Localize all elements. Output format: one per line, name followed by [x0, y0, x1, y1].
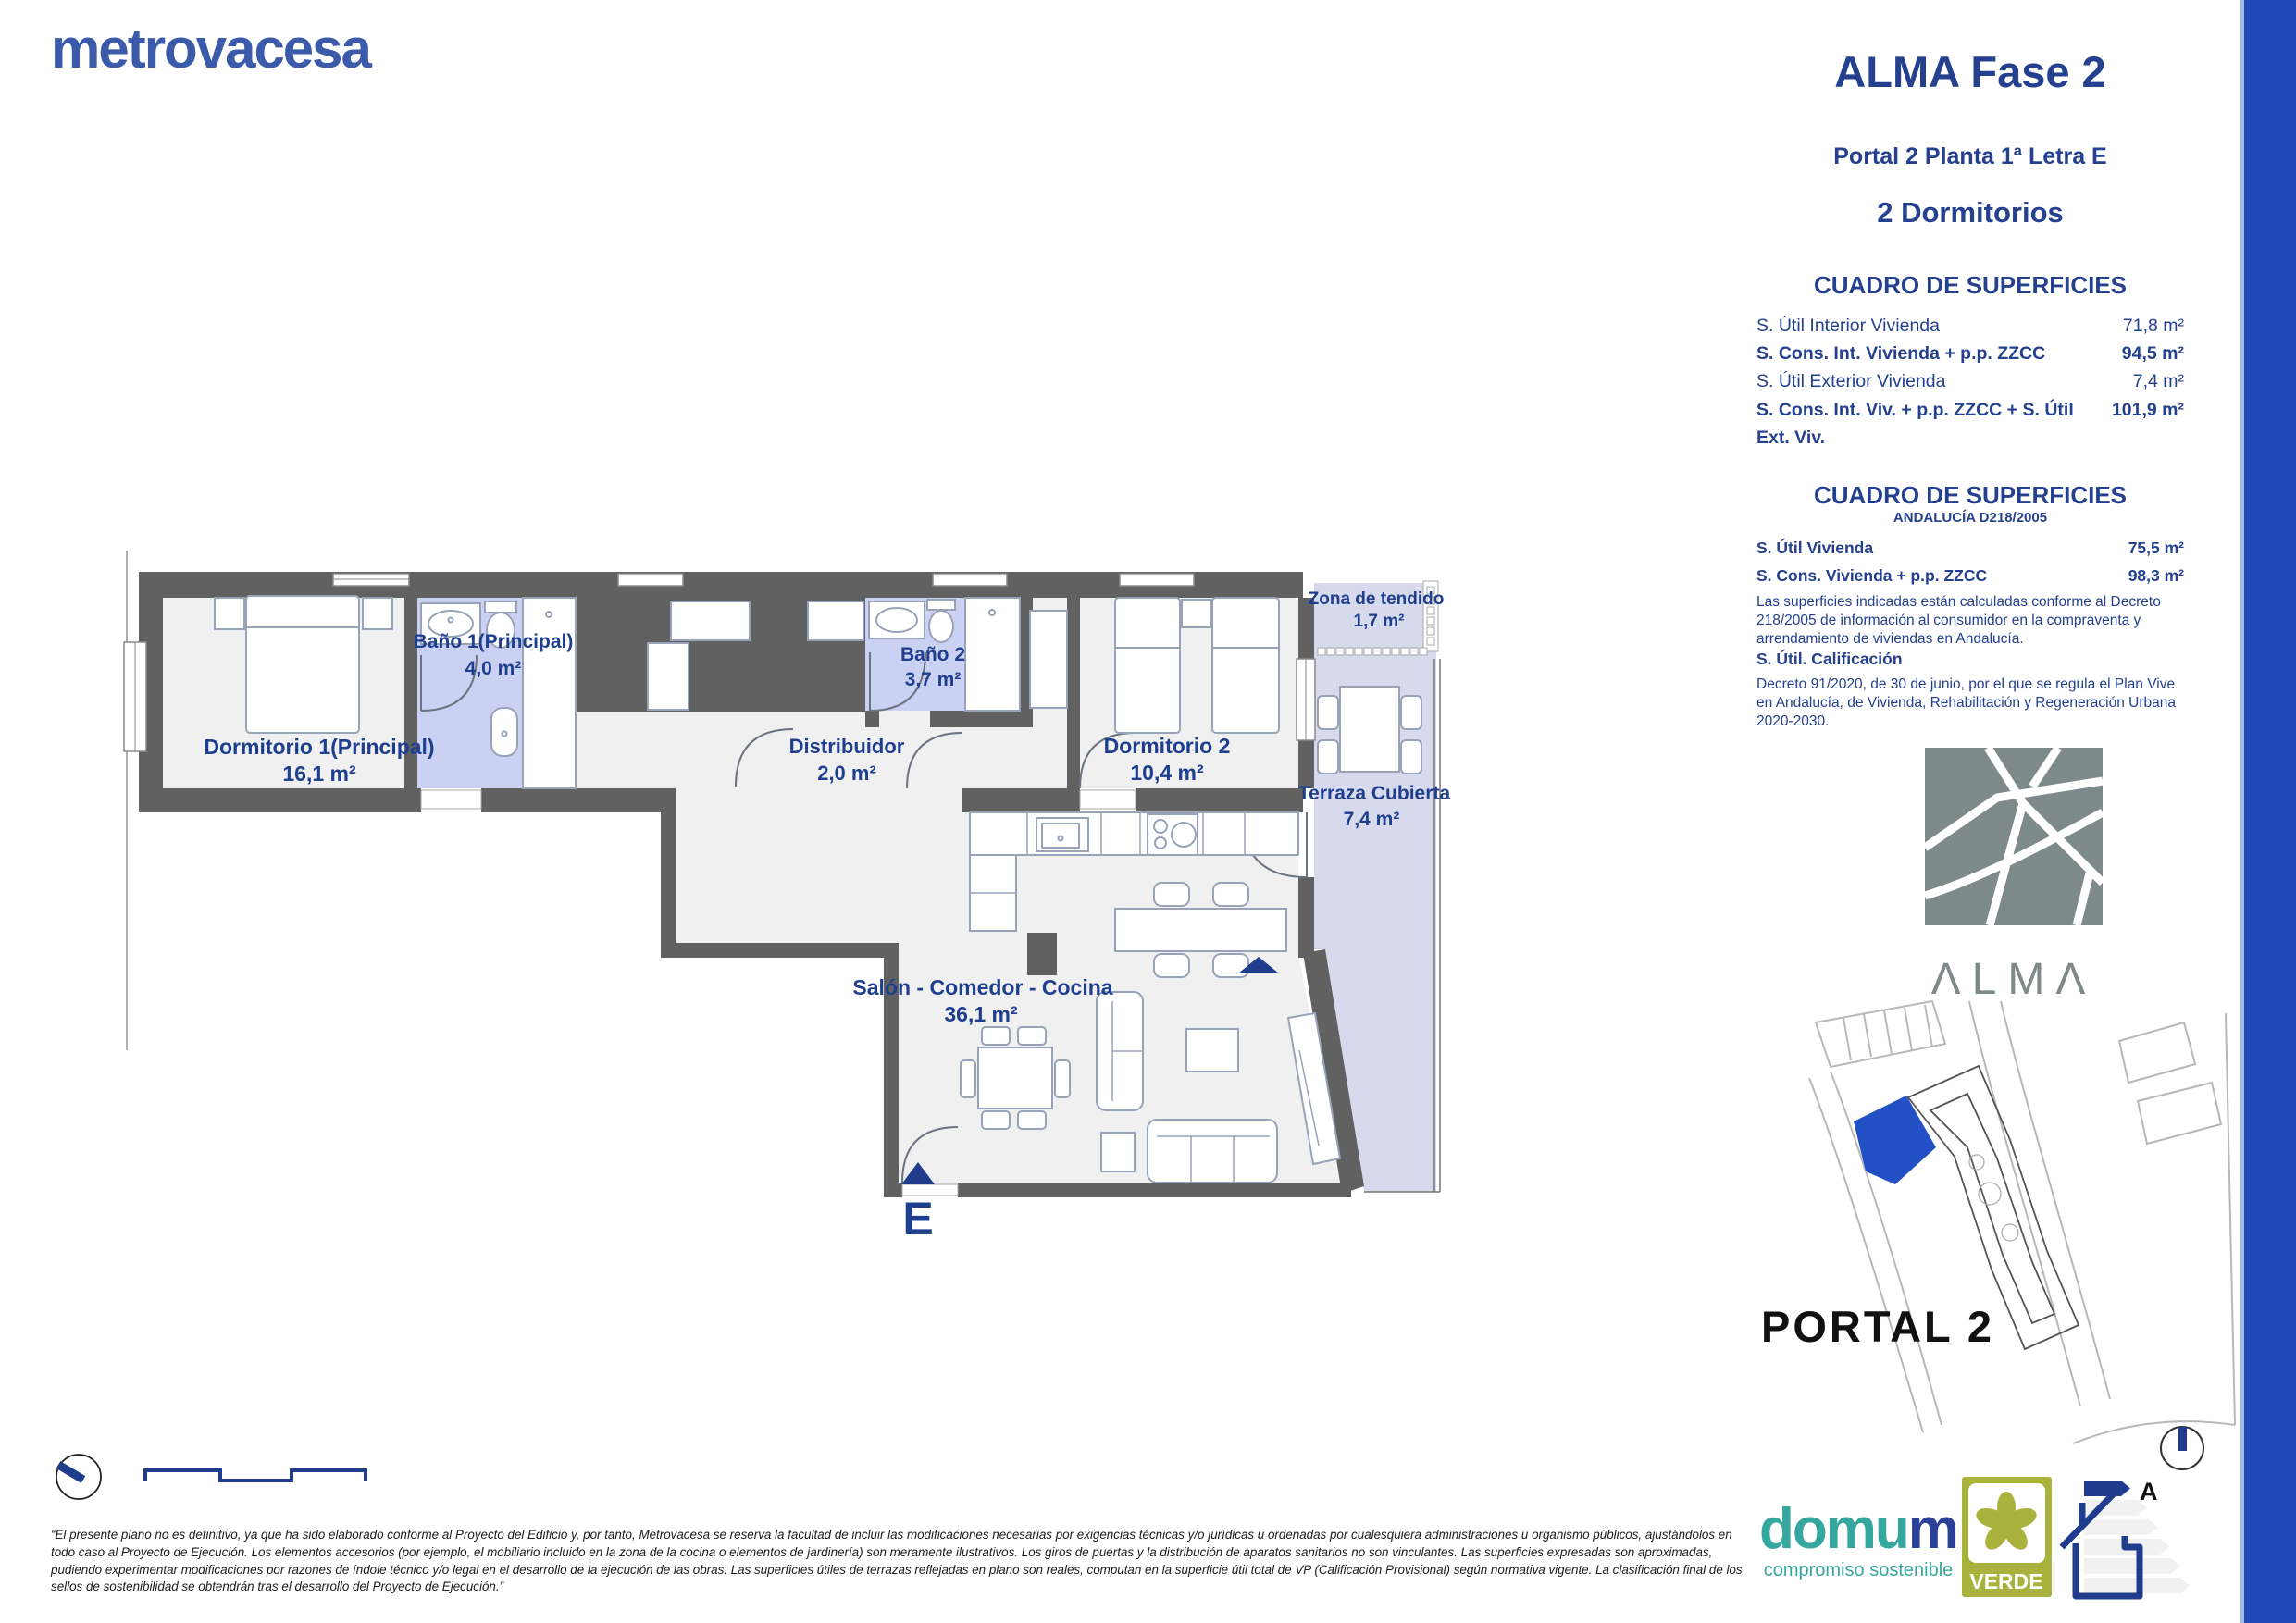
decreto-91-note: Decreto 91/2020, de 30 de junio, por el … — [1756, 675, 2184, 730]
row-label: S. Útil Vivienda — [1756, 535, 1873, 563]
chair — [961, 1060, 975, 1097]
row-value: 98,3 m² — [2128, 563, 2184, 590]
room-label: Baño 1(Principal) — [414, 631, 574, 652]
row-label: S. Cons. Vivienda + p.p. ZZCC — [1756, 563, 1987, 590]
unit-subtitle: Portal 2 Planta 1ª Letra E — [1756, 143, 2184, 170]
surfaces-table-title: CUADRO DE SUPERFICIES — [1756, 271, 2184, 300]
room-label: Dormitorio 1(Principal) — [204, 735, 434, 759]
table-row: S. Útil Interior Vivienda 71,8 m² — [1756, 312, 2184, 340]
side-table — [1101, 1133, 1135, 1171]
toilet-1 — [485, 601, 516, 613]
surfaces-table: S. Útil Interior Vivienda 71,8 m² S. Con… — [1756, 312, 2184, 452]
table-row: S. Útil Exterior Vivienda 7,4 m² — [1756, 367, 2184, 395]
calificacion-label: S. Útil. Calificación — [1756, 650, 2184, 669]
terrace-table — [1340, 687, 1399, 772]
row-label: S. Útil Exterior Vivienda — [1756, 367, 1945, 395]
sofa-horizontal — [1148, 1120, 1277, 1183]
nightstand — [363, 598, 392, 629]
floorplan-drawing: Dormitorio 1(Principal) 16,1 m² Baño 1(P… — [124, 551, 1450, 1245]
surfaces-table2-subtitle: ANDALUCÍA D218/2005 — [1756, 510, 2184, 526]
metrovacesa-logo: metrovacesa — [51, 17, 370, 81]
row-label: S. Cons. Int. Vivienda + p.p. ZZCC — [1756, 340, 2045, 367]
shower-1 — [523, 598, 576, 788]
terrace-chair — [1318, 740, 1338, 774]
stool — [1213, 954, 1248, 977]
coffee-table — [1186, 1029, 1238, 1072]
row-value: 101,9 m² — [2112, 396, 2184, 424]
bedroom-count: 2 Dormitorios — [1756, 196, 2184, 229]
domum-logo: domum compromiso sostenible — [1752, 1501, 1965, 1581]
room-area: 2,0 m² — [817, 762, 876, 785]
terrace-chair — [1401, 696, 1421, 729]
row-label: S. Útil Interior Vivienda — [1756, 312, 1940, 340]
kitchen-island — [1115, 909, 1286, 951]
table-row: S. Útil Vivienda 75,5 m² — [1756, 535, 2184, 563]
row-value: 7,4 m² — [2133, 367, 2184, 395]
room-area: 3,7 m² — [905, 669, 962, 690]
bed-single — [1212, 598, 1279, 733]
row-label: S. Cons. Int. Viv. + p.p. ZZCC + S. Útil… — [1756, 396, 2076, 452]
accent-bar — [2240, 0, 2296, 1623]
stool — [1213, 883, 1248, 906]
hall-floor — [676, 788, 962, 958]
page-title: ALMA Fase 2 — [1756, 46, 2184, 97]
scale-bar — [145, 1470, 366, 1481]
stool — [1154, 883, 1189, 906]
room-label: Baño 2 — [900, 644, 965, 665]
room-label: Distribuidor — [789, 735, 905, 758]
terrace-chair — [1318, 696, 1338, 729]
north-compass — [56, 1455, 101, 1499]
kitchen-counter — [970, 812, 1298, 855]
chair — [1055, 1060, 1070, 1097]
table-row: S. Cons. Int. Viv. + p.p. ZZCC + S. Útil… — [1756, 396, 2184, 452]
domum-tagline: compromiso sostenible — [1752, 1560, 1965, 1581]
surfaces-table2: S. Útil Vivienda 75,5 m² S. Cons. Vivien… — [1756, 535, 2184, 590]
row-value: 75,5 m² — [2128, 535, 2184, 563]
room-area: 36,1 m² — [944, 1002, 1018, 1026]
nightstand — [1182, 600, 1211, 627]
chair — [1018, 1111, 1046, 1129]
bed-double — [246, 596, 359, 733]
chair — [1018, 1027, 1046, 1045]
room-area: 10,4 m² — [1130, 761, 1204, 785]
bed-single — [1115, 598, 1180, 733]
dining-table — [978, 1047, 1052, 1109]
terrace-chair — [1401, 740, 1421, 774]
room-area: 16,1 m² — [282, 762, 356, 786]
chair — [982, 1027, 1010, 1045]
domum-wordmark-accent: m — [1908, 1497, 1957, 1561]
toilet-2 — [927, 600, 955, 610]
room-area: 7,4 m² — [1344, 809, 1400, 830]
chair — [982, 1111, 1010, 1129]
entrance-label: E — [902, 1193, 933, 1245]
decreto-218-note: Las superficies indicadas están calculad… — [1756, 593, 2184, 648]
floorplan-sheet: Dormitorio 1(Principal) 16,1 m² Baño 1(P… — [0, 0, 2296, 1623]
surfaces-table2-title: CUADRO DE SUPERFICIES — [1756, 481, 2184, 510]
room-label: Zona de tendido — [1309, 589, 1445, 609]
row-value: 94,5 m² — [2122, 340, 2184, 367]
table-row: S. Cons. Vivienda + p.p. ZZCC 98,3 m² — [1756, 563, 2184, 590]
room-area: 1,7 m² — [1354, 612, 1405, 631]
domum-wordmark-main: domu — [1759, 1497, 1908, 1561]
row-value: 71,8 m² — [2123, 312, 2184, 340]
legal-disclaimer: “El presente plano no es definitivo, ya … — [51, 1527, 1758, 1596]
room-area: 4,0 m² — [465, 658, 522, 679]
room-label: Dormitorio 2 — [1104, 734, 1231, 758]
room-label: Terraza Cubierta — [1298, 783, 1450, 804]
nightstand — [215, 598, 244, 629]
table-row: S. Cons. Int. Vivienda + p.p. ZZCC 94,5 … — [1756, 340, 2184, 367]
stool — [1154, 954, 1189, 977]
info-column: ALMA Fase 2 Portal 2 Planta 1ª Letra E 2… — [1756, 0, 2184, 1623]
room-label: Salón - Comedor - Cocina — [852, 975, 1112, 999]
